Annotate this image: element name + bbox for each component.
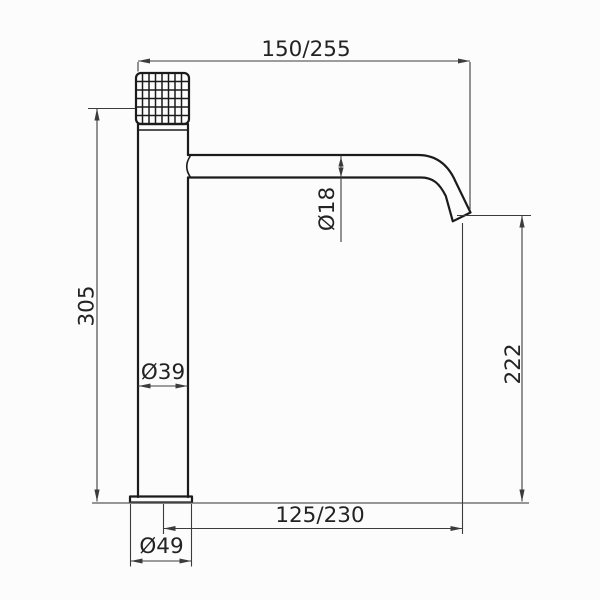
- dim-spout-height: 222: [457, 216, 531, 502]
- handle-knurl-pattern: [137, 74, 188, 123]
- dim-label-base-diameter: Ø49: [139, 534, 183, 559]
- faucet-body: [138, 124, 188, 497]
- dim-label-spout-height: 222: [501, 343, 526, 384]
- dim-base-diameter: Ø49: [131, 504, 192, 567]
- arrowhead: [180, 559, 192, 564]
- dim-spout-diameter: Ø18: [315, 156, 344, 243]
- dim-center-to-outlet: 125/230: [164, 223, 463, 534]
- technical-drawing-canvas: 150/255 Ø18 305 Ø39 222 125/230: [0, 0, 600, 600]
- arrowhead: [138, 59, 150, 64]
- dim-body-diameter: Ø39: [138, 360, 188, 389]
- arrowhead: [519, 490, 524, 502]
- spout-body-junction-arc: [187, 157, 190, 177]
- arrowhead: [338, 157, 343, 167]
- dim-label-center-to-outlet: 125/230: [275, 503, 364, 528]
- arrowhead: [458, 59, 470, 64]
- dim-label-spout-diameter: Ø18: [315, 187, 340, 231]
- dim-body-height: 305: [75, 109, 136, 502]
- base-flange: [130, 497, 192, 503]
- dim-label-body-height: 305: [75, 285, 100, 326]
- faucet-outline: [130, 73, 471, 503]
- arrowhead: [94, 109, 99, 121]
- arrowhead: [451, 526, 463, 531]
- arrowhead: [164, 526, 176, 531]
- arrowhead: [94, 490, 99, 502]
- faucet-dimension-drawing: 150/255 Ø18 305 Ø39 222 125/230: [0, 0, 600, 600]
- arrowhead: [519, 216, 524, 228]
- dim-label-total-reach: 150/255: [261, 37, 350, 62]
- dim-label-body-diameter: Ø39: [141, 360, 185, 385]
- arrowhead: [131, 559, 143, 564]
- arrowhead: [338, 168, 343, 178]
